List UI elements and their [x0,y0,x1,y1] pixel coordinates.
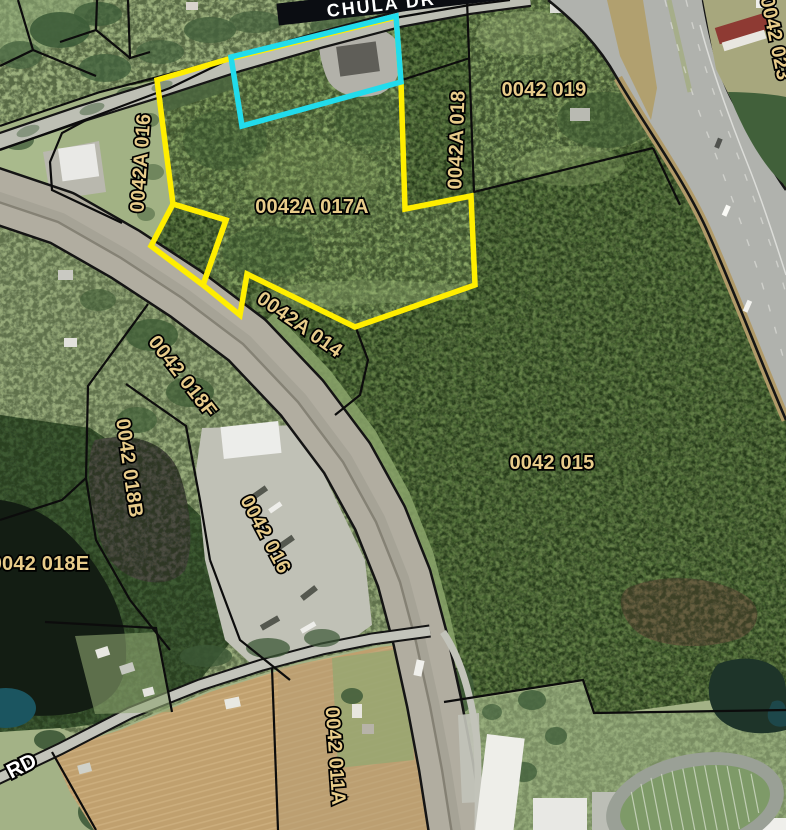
svg-text:0042 015: 0042 015 [509,452,594,474]
svg-text:0042A 018: 0042A 018 [444,90,469,190]
svg-text:0042 019: 0042 019 [501,79,586,101]
svg-text:0042 018E: 0042 018E [0,553,89,575]
svg-text:0042A 017A: 0042A 017A [255,196,369,218]
